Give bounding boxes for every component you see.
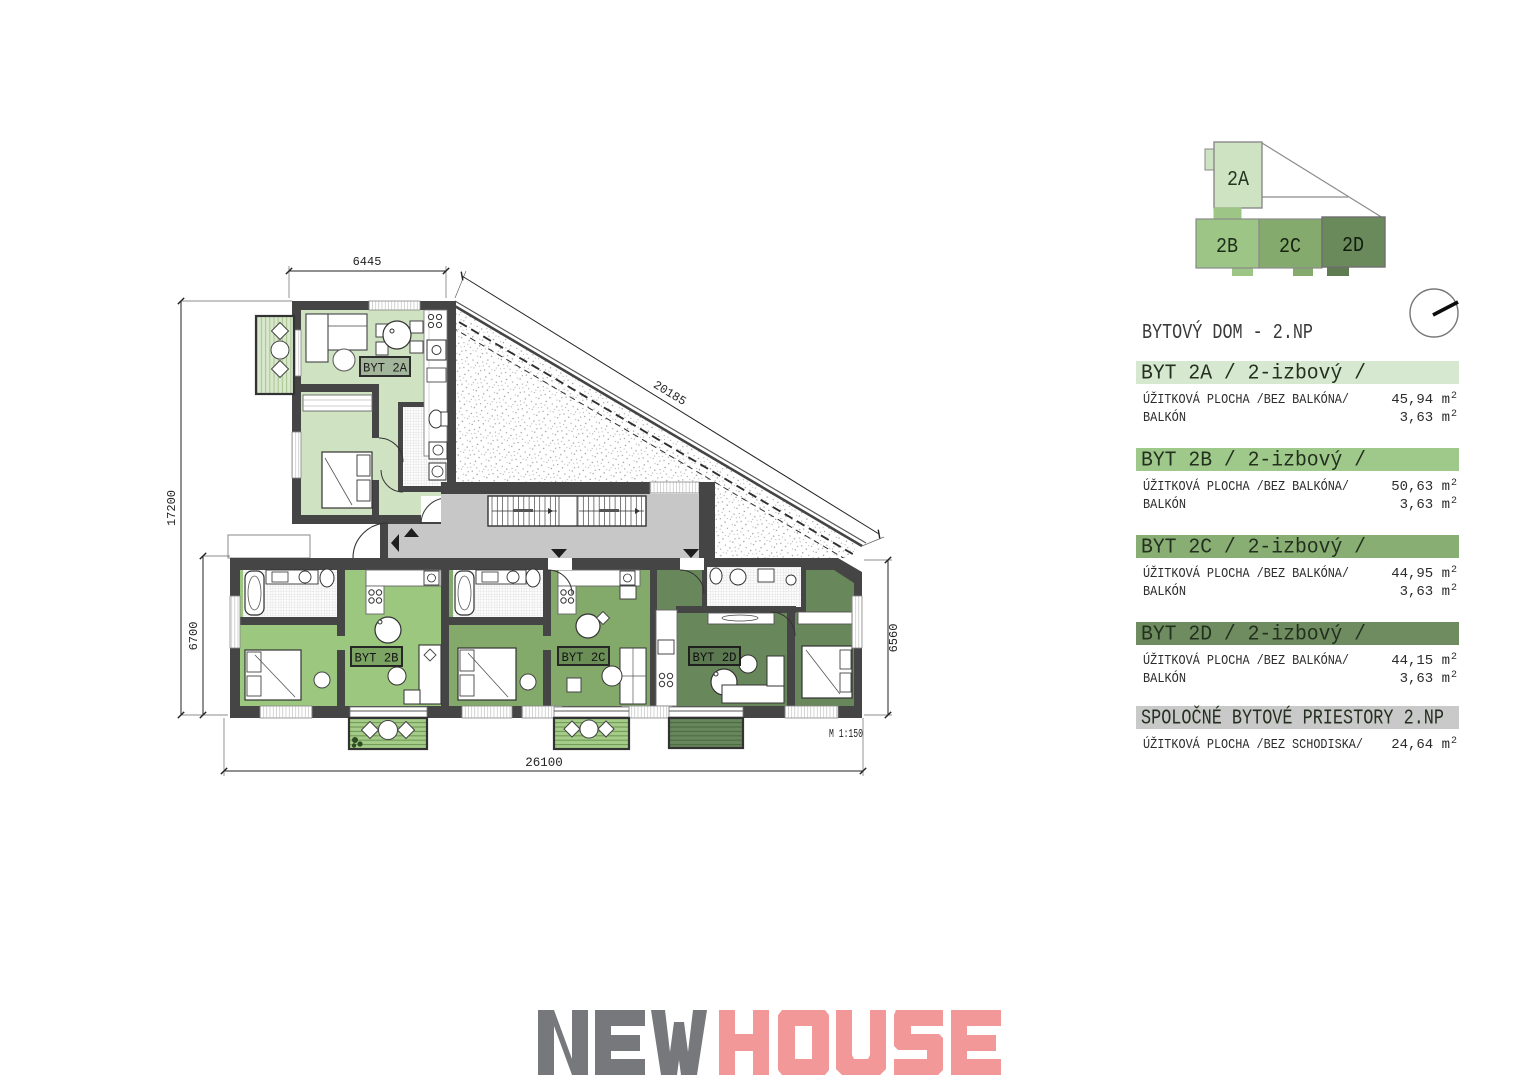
- svg-text:BYT 2D / 2-izbový /: BYT 2D / 2-izbový /: [1141, 624, 1366, 647]
- svg-text:BYT 2B / 2-izbový /: BYT 2B / 2-izbový /: [1141, 450, 1366, 473]
- svg-text:6700: 6700: [187, 622, 201, 651]
- svg-text:BYT 2D: BYT 2D: [693, 650, 737, 665]
- svg-text:3,63 m: 3,63 m: [1400, 671, 1450, 687]
- svg-text:2: 2: [1451, 670, 1457, 681]
- svg-text:2: 2: [1451, 496, 1457, 507]
- svg-text:BALKÓN: BALKÓN: [1143, 408, 1186, 426]
- svg-text:2: 2: [1451, 409, 1457, 420]
- svg-text:2: 2: [1451, 736, 1457, 747]
- svg-text:BYT 2A / 2-izbový /: BYT 2A / 2-izbový /: [1141, 363, 1366, 386]
- svg-text:45,94 m: 45,94 m: [1391, 392, 1450, 408]
- svg-text:BYT 2C / 2-izbový /: BYT 2C / 2-izbový /: [1141, 537, 1366, 560]
- svg-text:BYTOVÝ DOM - 2.NP: BYTOVÝ DOM - 2.NP: [1142, 321, 1313, 345]
- svg-text:2: 2: [1451, 478, 1457, 489]
- svg-text:M 1:150: M 1:150: [829, 728, 863, 741]
- svg-text:2D: 2D: [1342, 235, 1364, 258]
- svg-text:3,63 m: 3,63 m: [1400, 584, 1450, 600]
- svg-text:26100: 26100: [525, 756, 563, 770]
- svg-text:17200: 17200: [165, 490, 179, 526]
- svg-text:6560: 6560: [887, 624, 901, 653]
- svg-text:3,63 m: 3,63 m: [1400, 497, 1450, 513]
- svg-text:44,15 m: 44,15 m: [1391, 653, 1450, 669]
- svg-text:24,64 m: 24,64 m: [1391, 737, 1450, 753]
- svg-text:2: 2: [1451, 565, 1457, 576]
- svg-text:BALKÓN: BALKÓN: [1143, 669, 1186, 687]
- svg-text:BYT 2A: BYT 2A: [363, 361, 407, 376]
- svg-text:ÚŽITKOVÁ PLOCHA /BEZ BALKÓNA/: ÚŽITKOVÁ PLOCHA /BEZ BALKÓNA/: [1143, 390, 1349, 408]
- svg-text:SPOLOČNÉ BYTOVÉ PRIESTORY 2.NP: SPOLOČNÉ BYTOVÉ PRIESTORY 2.NP: [1141, 707, 1444, 731]
- svg-text:50,63 m: 50,63 m: [1391, 479, 1450, 495]
- svg-text:2: 2: [1451, 583, 1457, 594]
- svg-text:BALKÓN: BALKÓN: [1143, 495, 1186, 513]
- svg-text:6445: 6445: [353, 255, 382, 269]
- svg-text:ÚŽITKOVÁ PLOCHA /BEZ BALKÓNA/: ÚŽITKOVÁ PLOCHA /BEZ BALKÓNA/: [1143, 477, 1349, 495]
- svg-text:2: 2: [1451, 652, 1457, 663]
- svg-text:BYT 2C: BYT 2C: [562, 650, 606, 665]
- svg-text:2B: 2B: [1216, 236, 1238, 259]
- svg-text:44,95 m: 44,95 m: [1391, 566, 1450, 582]
- svg-text:3,63 m: 3,63 m: [1400, 410, 1450, 426]
- svg-text:ÚŽITKOVÁ PLOCHA /BEZ SCHODISKA: ÚŽITKOVÁ PLOCHA /BEZ SCHODISKA/: [1143, 735, 1363, 753]
- svg-text:2C: 2C: [1279, 236, 1301, 259]
- svg-text:ÚŽITKOVÁ PLOCHA /BEZ BALKÓNA/: ÚŽITKOVÁ PLOCHA /BEZ BALKÓNA/: [1143, 564, 1349, 582]
- svg-text:BYT 2B: BYT 2B: [355, 651, 399, 666]
- svg-text:2: 2: [1451, 391, 1457, 402]
- svg-text:ÚŽITKOVÁ PLOCHA /BEZ BALKÓNA/: ÚŽITKOVÁ PLOCHA /BEZ BALKÓNA/: [1143, 651, 1349, 669]
- svg-text:BALKÓN: BALKÓN: [1143, 582, 1186, 600]
- svg-text:2A: 2A: [1227, 169, 1249, 192]
